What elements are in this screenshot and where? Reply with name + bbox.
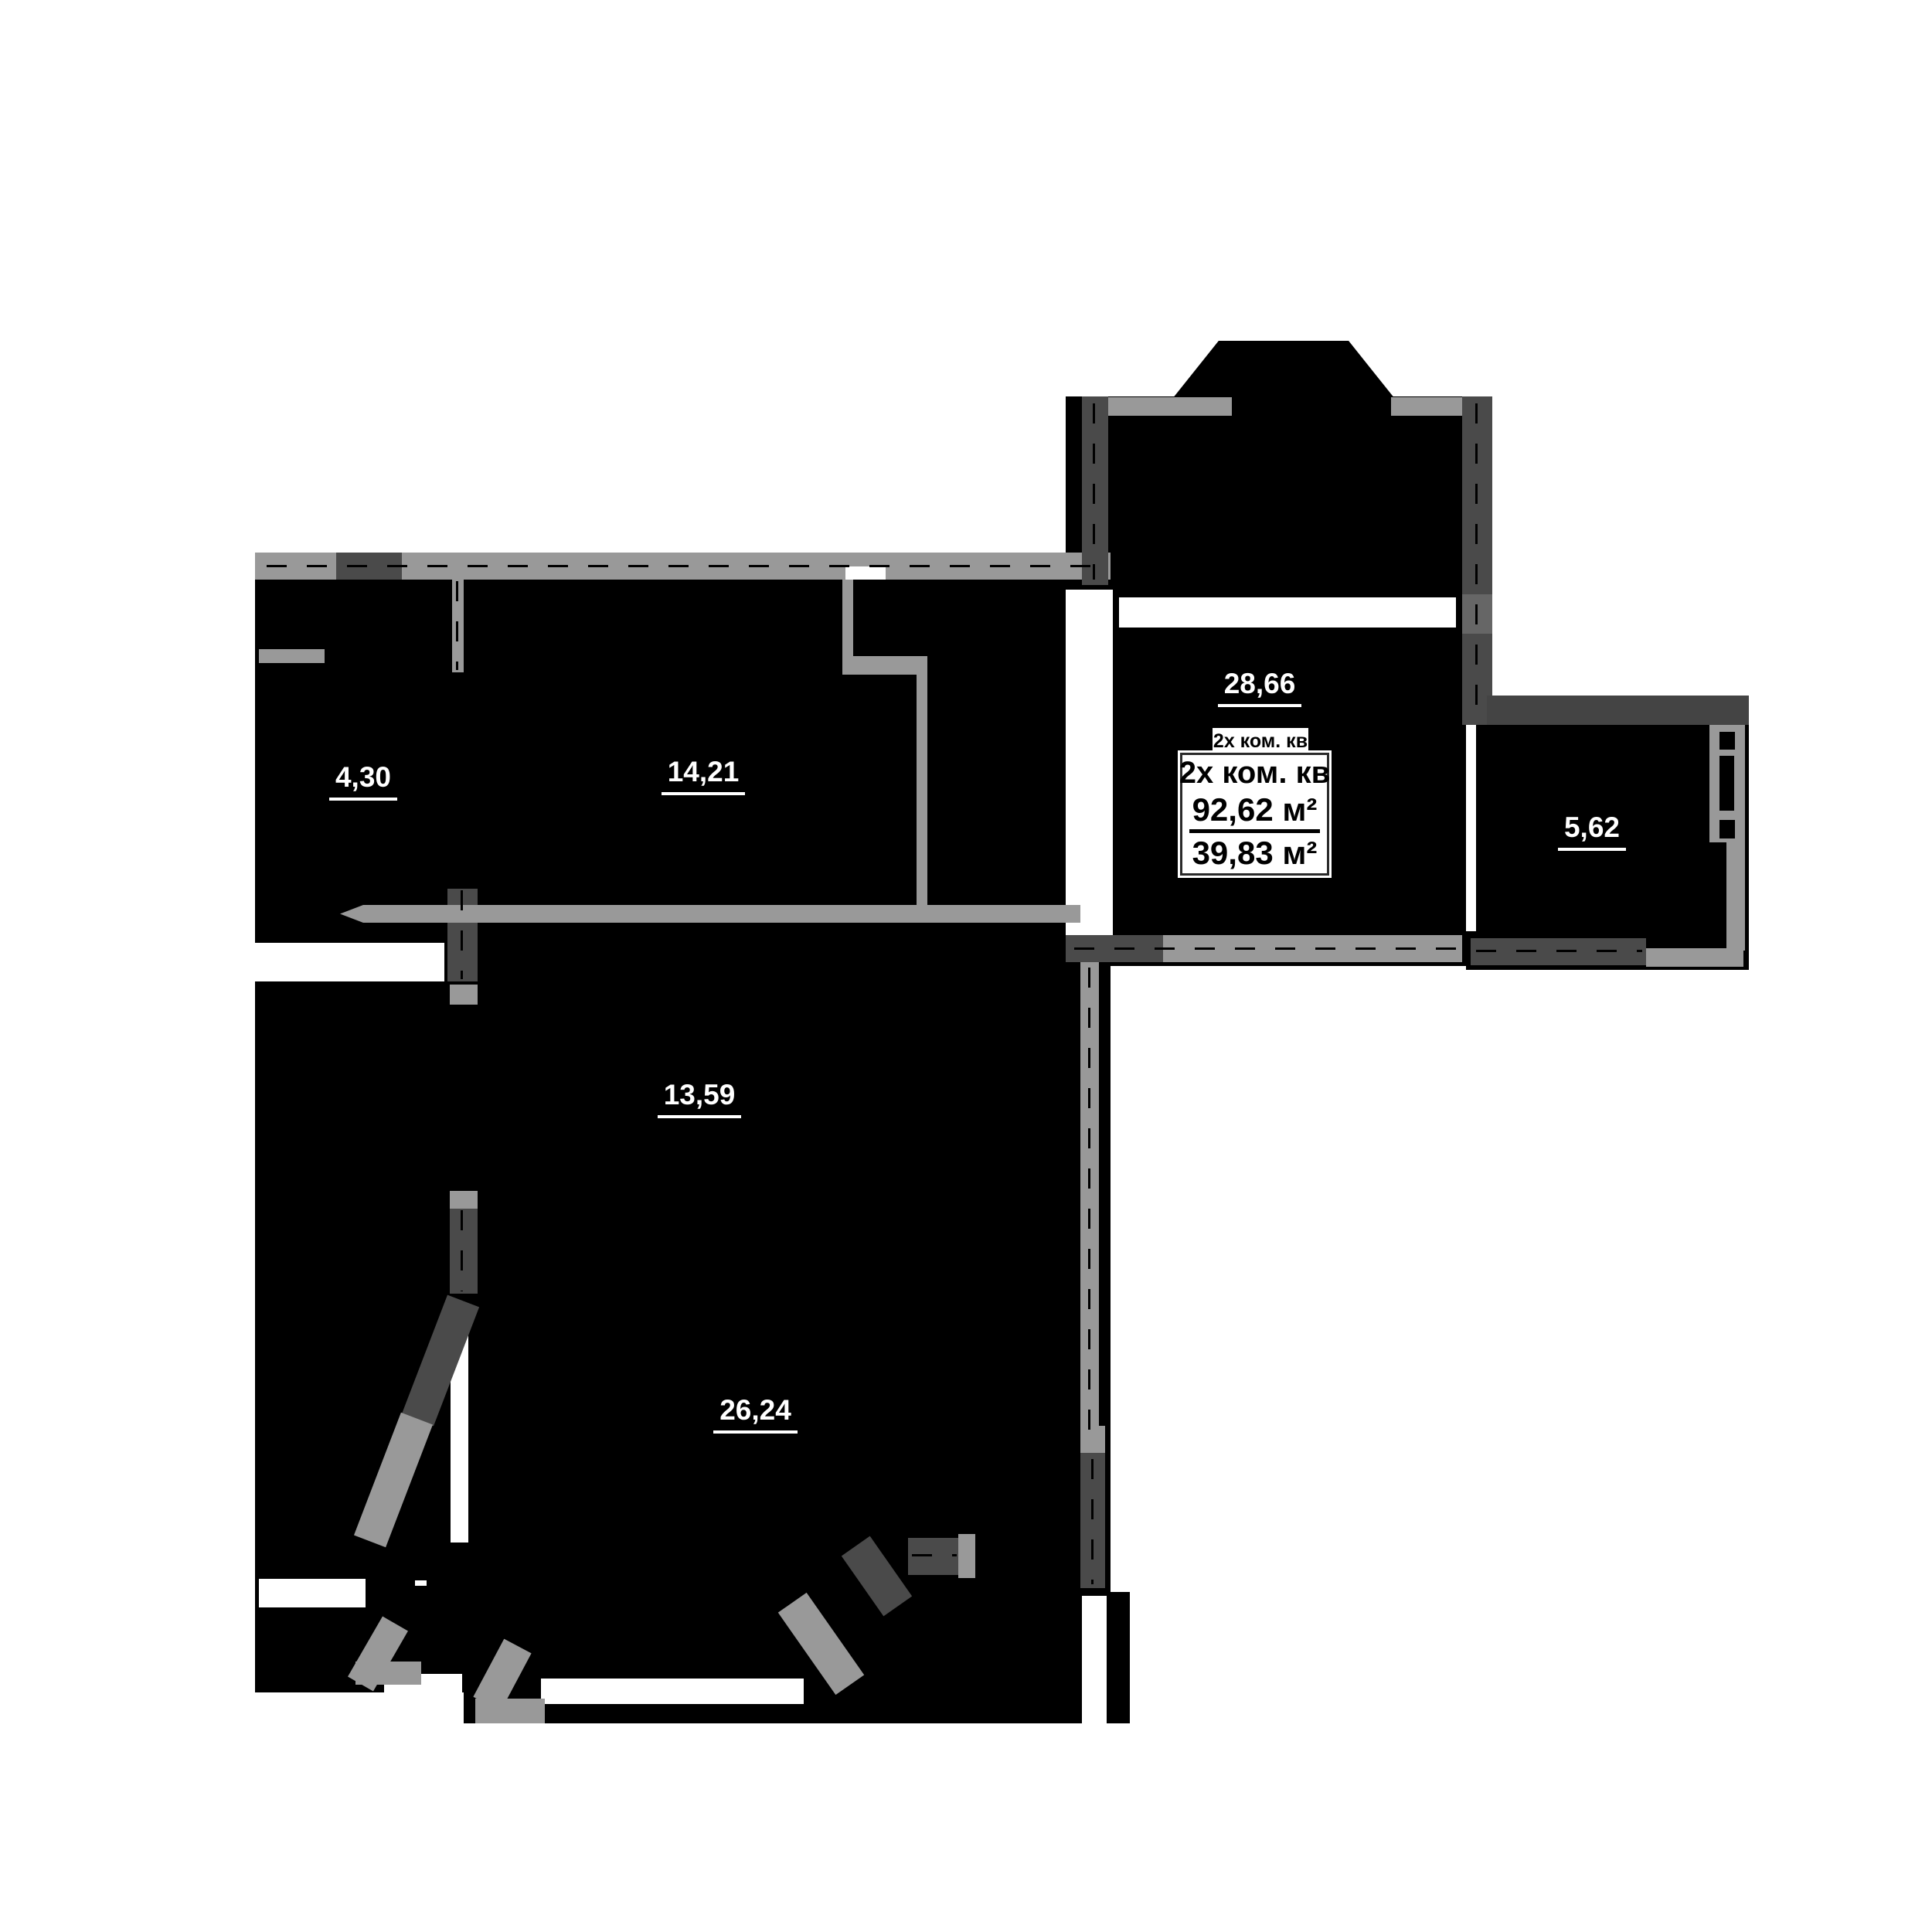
- bottom-right-opening: [1082, 1596, 1107, 1723]
- centerline-top-wall: [267, 565, 1101, 567]
- room-label-28-66: 28,66: [1202, 668, 1318, 707]
- room-label-13-59: 13,59: [641, 1079, 757, 1118]
- wall-wing-left: [1082, 396, 1108, 585]
- balcony-glazing-lower: [1726, 842, 1745, 951]
- room-area-value: 28,66: [1218, 668, 1302, 707]
- room-label-4-30: 4,30: [309, 761, 417, 801]
- centerline-balcony-bottom: [1476, 950, 1642, 952]
- bay-window-fill: [1172, 341, 1395, 399]
- wall-right-cap: [1080, 1426, 1105, 1453]
- door-leaf-4-cap: [958, 1534, 975, 1578]
- bottom-window-opening: [541, 1679, 804, 1704]
- wall-balcony-top: [1484, 696, 1749, 725]
- wall-vestibule-v2: [917, 675, 927, 923]
- small-opening: [415, 1580, 427, 1586]
- centerline-wing-right: [1475, 403, 1478, 719]
- wing-doorway-opening: [1066, 590, 1113, 935]
- centerline-wall-v-4-30: [456, 581, 458, 670]
- centerline-wing-left: [1093, 403, 1095, 580]
- wall-v-lower-dark: [450, 1209, 478, 1294]
- wall-balcony-bottom-light: [1646, 948, 1743, 967]
- centerline-wall-v-lower: [461, 1210, 463, 1291]
- corridor-stub-fill: [1111, 1592, 1130, 1723]
- centerline-wall-v-corridor: [461, 890, 463, 979]
- room-label-balcony-5-62: 5,62: [1534, 811, 1650, 851]
- door-leaf-3-bar: [475, 1699, 545, 1723]
- floor-plan: 4,30 14,21 28,66 13,59 26,24 5,62 2х ком…: [0, 0, 1932, 1932]
- balcony-glazing-hole-3: [1719, 820, 1735, 838]
- entry-door-gap: [845, 566, 886, 580]
- wall-vestibule-v1: [842, 580, 853, 666]
- apartment-type-tag: 2х ком. кв: [1211, 726, 1310, 756]
- apartment-type-text: 2х ком. кв: [1179, 755, 1330, 791]
- wall-v-corridor-cap: [450, 985, 478, 1005]
- centerline-door-jamb: [912, 1554, 957, 1556]
- living-area-text: 39,83 м²: [1192, 833, 1318, 873]
- total-area-text: 92,62 м²: [1189, 791, 1321, 833]
- wall-vestibule-h: [842, 656, 927, 675]
- wing-window-opening: [1119, 597, 1456, 628]
- centerline-right-wall: [1088, 968, 1090, 1430]
- room-area-value: 26,24: [713, 1394, 798, 1434]
- corridor-opening-left: [255, 943, 444, 981]
- balcony-glazing-hole-2: [1719, 756, 1734, 811]
- apartment-type-tag-text: 2х ком. кв: [1213, 730, 1308, 753]
- room-area-value: 14,21: [662, 756, 746, 795]
- centerline-right-wall-dark: [1091, 1459, 1094, 1584]
- apartment-info-box: 2х ком. кв 92,62 м² 39,83 м²: [1180, 753, 1329, 876]
- balcony-glazing-hole-1: [1719, 732, 1735, 750]
- left-wall-opening: [259, 1579, 366, 1607]
- door-leaf-4-jamb: [908, 1538, 958, 1575]
- wall-wing-top-bay-gap: [1232, 397, 1391, 416]
- room-area-value: 4,30: [329, 761, 397, 801]
- wall-stub-room-4-30: [259, 649, 325, 663]
- room-area-value: 5,62: [1558, 811, 1626, 851]
- room-label-14-21: 14,21: [645, 756, 761, 795]
- wall-h-divider: [363, 905, 1080, 923]
- room-area-value: 13,59: [658, 1079, 742, 1118]
- centerline-wing-bottom: [1074, 947, 1457, 950]
- wall-v-lower-cap: [450, 1191, 478, 1209]
- door-leaf-2-bar: [355, 1662, 421, 1685]
- room-label-26-24: 26,24: [696, 1394, 815, 1434]
- balcony-door-opening: [1466, 725, 1476, 931]
